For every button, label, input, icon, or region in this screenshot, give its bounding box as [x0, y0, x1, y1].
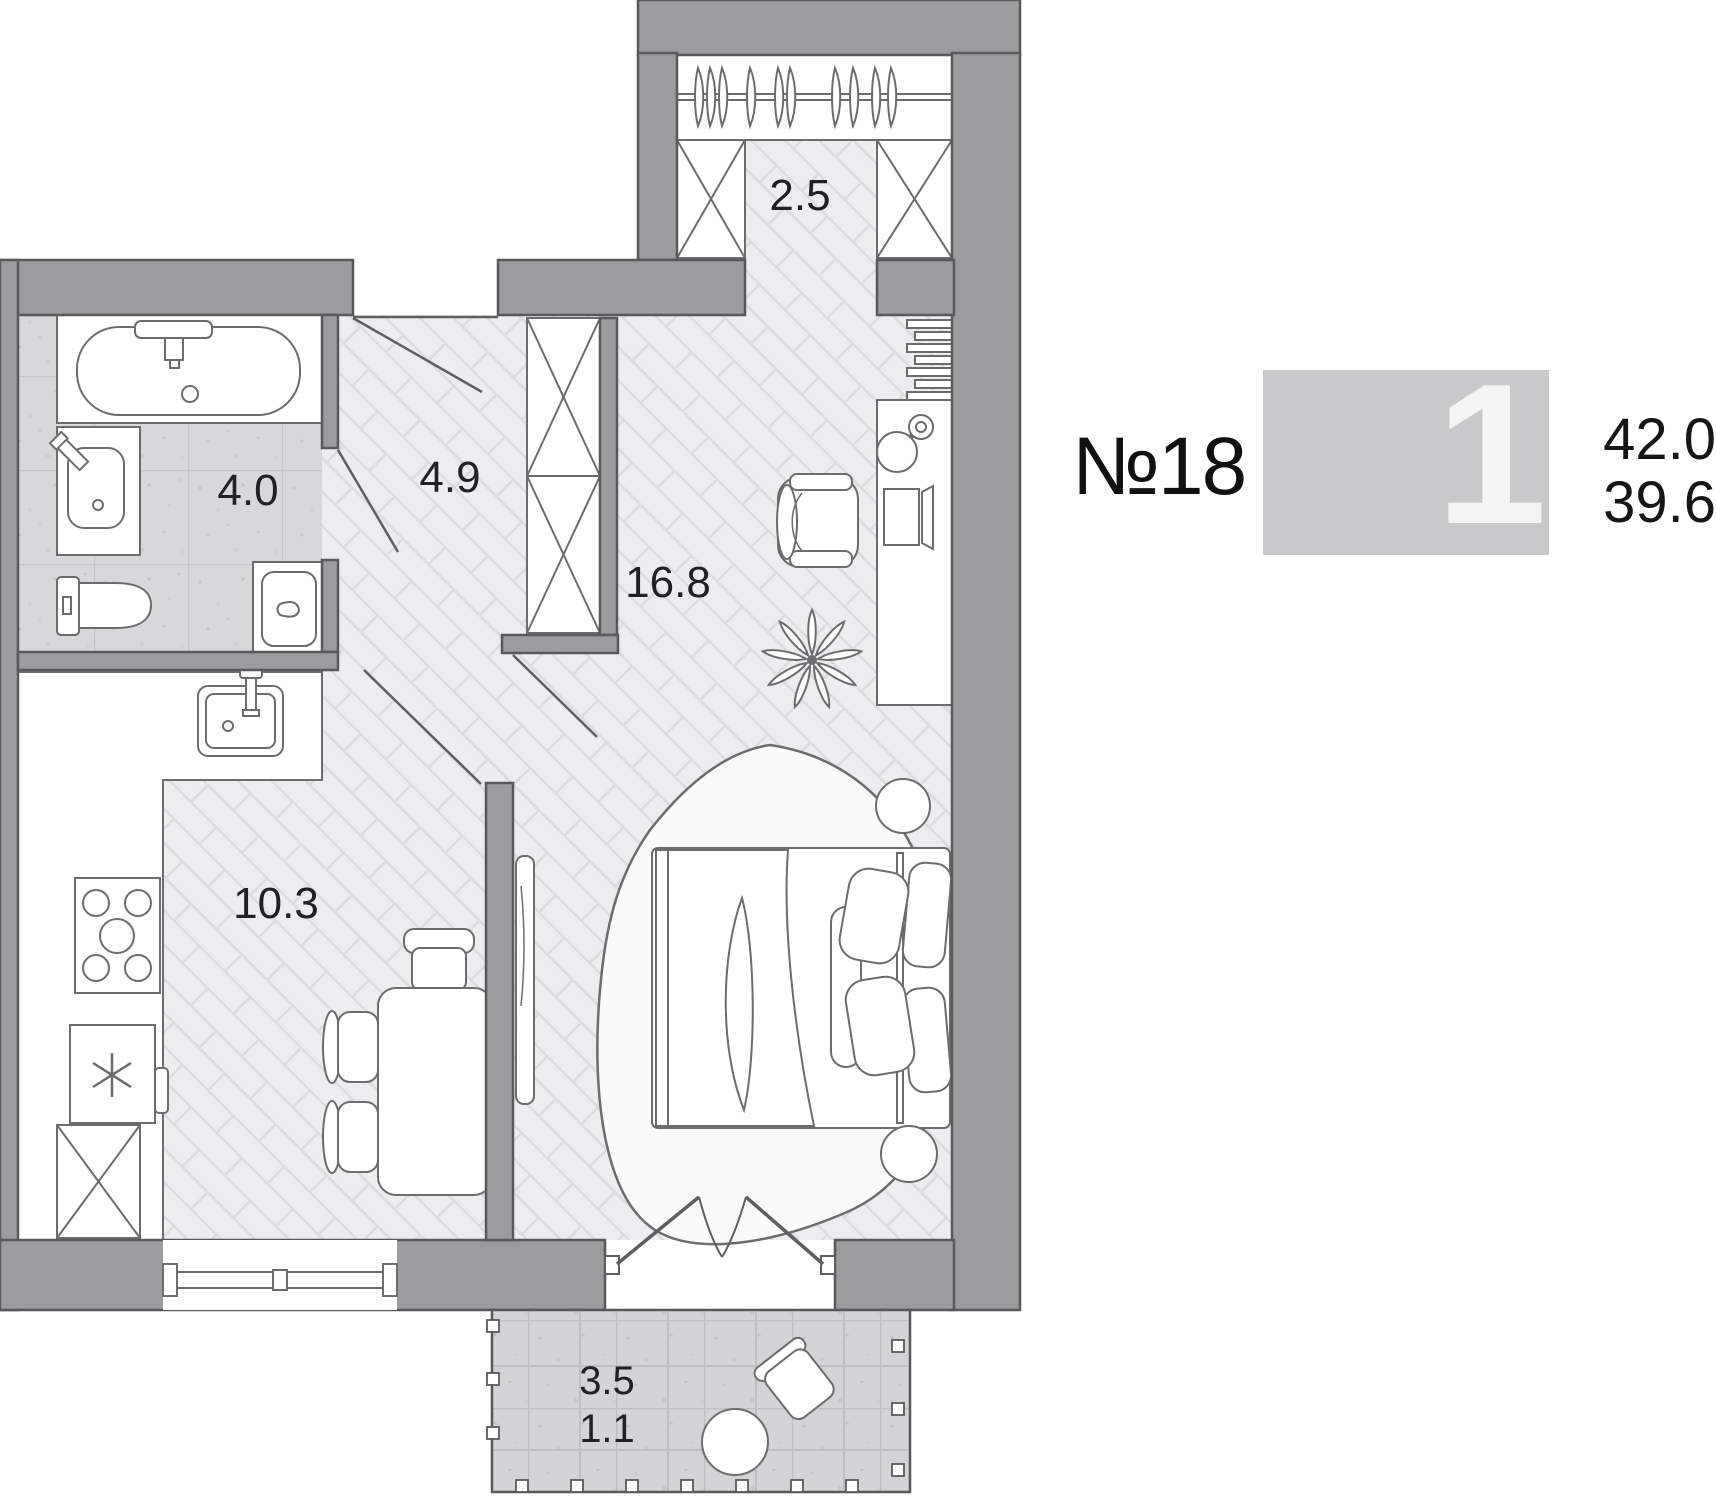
desk-chair	[777, 474, 858, 567]
wall	[322, 315, 338, 448]
kitchen-drain-icon	[223, 721, 233, 731]
hall-area-label: 4.9	[419, 453, 480, 502]
kitchen-cabinet	[57, 1125, 140, 1238]
dining-chair	[323, 1011, 378, 1083]
area-total: 42.0	[1603, 408, 1716, 471]
areas: 42.0 39.6	[1603, 408, 1716, 534]
kitchen-window	[163, 1240, 397, 1310]
burner-icon	[100, 919, 134, 953]
floor-plan: 2.5 4.9 4.0 16.8 10.3 3.5 1.1	[0, 0, 1716, 1500]
wall	[952, 53, 1020, 1310]
washbasin-drain-icon	[93, 500, 103, 510]
area-living: 39.6	[1603, 471, 1716, 534]
wall	[486, 783, 513, 1240]
toilet-bowl	[79, 583, 151, 628]
burner-icon	[83, 890, 109, 916]
bathroom-area-label: 4.0	[217, 466, 278, 515]
wall	[600, 318, 617, 635]
bath-drain-icon	[182, 386, 198, 402]
balcony-reduced-area-label: 1.1	[579, 1407, 635, 1451]
laundry-sink	[253, 562, 322, 652]
balcony-area-label: 3.5	[579, 1359, 635, 1403]
rooms-count: 1	[1436, 370, 1547, 555]
closet-cabinet-left	[677, 140, 745, 258]
rooms-badge: 1	[1263, 370, 1549, 555]
wall	[502, 635, 618, 653]
closet-cabinet-right	[877, 140, 952, 258]
fridge	[70, 1025, 168, 1123]
pouf	[876, 779, 930, 833]
closet-passage-floor	[745, 140, 877, 320]
burner-icon	[83, 955, 109, 981]
bed	[652, 848, 952, 1128]
tv-console	[516, 856, 534, 1104]
wall	[0, 260, 353, 315]
unit-number: №18	[1072, 420, 1245, 514]
bathtub	[57, 315, 322, 423]
wall	[0, 260, 18, 1310]
hall-wardrobe	[527, 318, 600, 633]
burner-icon	[125, 890, 151, 916]
dining-table	[378, 988, 492, 1195]
bath-faucet-icon	[135, 321, 212, 338]
pillow	[902, 861, 953, 968]
wall	[638, 0, 1020, 55]
wall	[638, 53, 677, 260]
balcony-table	[702, 1409, 768, 1475]
wall	[18, 652, 338, 670]
burner-icon	[125, 955, 151, 981]
floorplan-page: 2.5 4.9 4.0 16.8 10.3 3.5 1.1 №18 1 42.0…	[0, 0, 1716, 1500]
wall	[322, 560, 338, 652]
monitor-icon	[884, 486, 933, 549]
balcony-floor	[492, 1310, 910, 1492]
pouf	[881, 1126, 937, 1182]
dining-chair	[404, 929, 474, 990]
toilet-flush-icon	[63, 597, 71, 614]
kitchen-area-label: 10.3	[233, 879, 319, 928]
living-area-label: 16.8	[625, 558, 711, 607]
dining-chair	[323, 1101, 378, 1173]
wall	[877, 260, 954, 315]
stove	[75, 878, 160, 993]
wall	[835, 1240, 954, 1310]
closet-area-label: 2.5	[769, 171, 830, 220]
drop-icon	[278, 602, 300, 617]
wall	[498, 260, 745, 315]
washbasin	[50, 427, 140, 555]
